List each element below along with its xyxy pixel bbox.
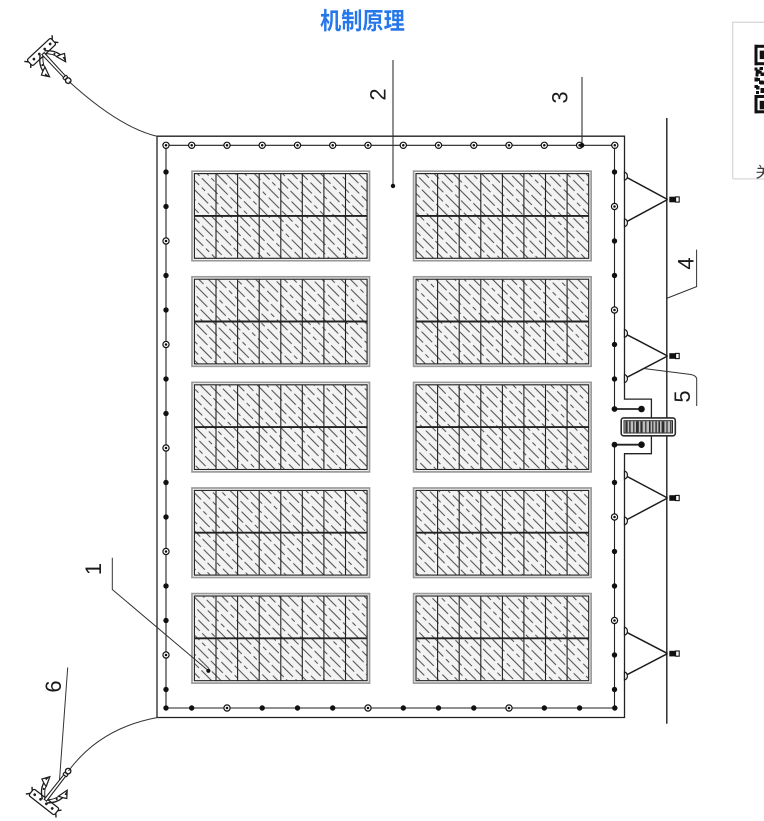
svg-text:3: 3 — [548, 91, 573, 103]
svg-text:1: 1 — [81, 563, 106, 575]
svg-text:4: 4 — [674, 257, 699, 269]
svg-text:2: 2 — [366, 88, 391, 100]
svg-text:6: 6 — [41, 680, 66, 692]
svg-text:5: 5 — [670, 390, 695, 402]
